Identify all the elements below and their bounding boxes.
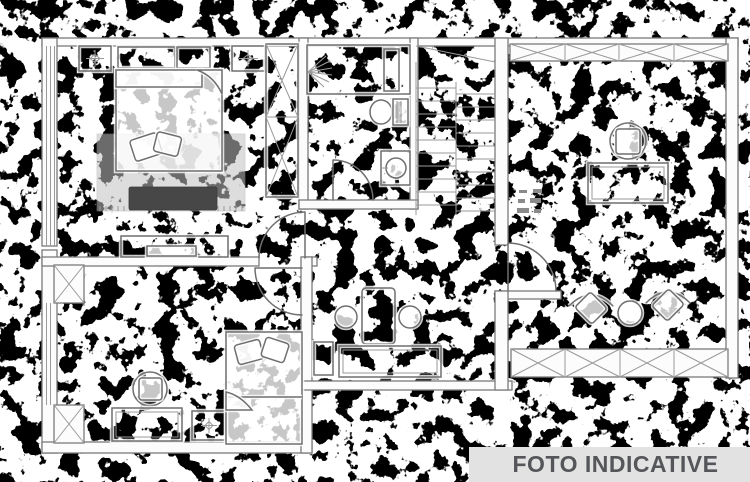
watermark-banner: FOTO INDICATIVE [469, 447, 750, 482]
cushion [153, 131, 182, 156]
window-band-bottom-right [511, 349, 728, 377]
radiator-bottom [54, 405, 84, 443]
wall-bath2-bottom [302, 381, 512, 390]
desk-chair [133, 372, 167, 406]
wall-bath1-bottom [299, 200, 418, 209]
window-band-top-right [510, 44, 728, 61]
floorplan-photo: FOTO INDICATIVE [0, 0, 750, 482]
office-chair [610, 123, 646, 159]
coffee-table [618, 301, 642, 325]
bed-header [116, 70, 202, 87]
radiator-top [54, 265, 84, 303]
tv [147, 246, 196, 256]
wall-door-stub-v [495, 291, 508, 390]
wall-stairs-office [495, 38, 508, 245]
watermark-label: FOTO INDICATIVE [513, 451, 719, 478]
wall-right [726, 38, 738, 378]
toilet [370, 99, 408, 125]
pillow [260, 337, 289, 363]
floorplan-drawing [0, 0, 750, 482]
bench [129, 187, 217, 210]
